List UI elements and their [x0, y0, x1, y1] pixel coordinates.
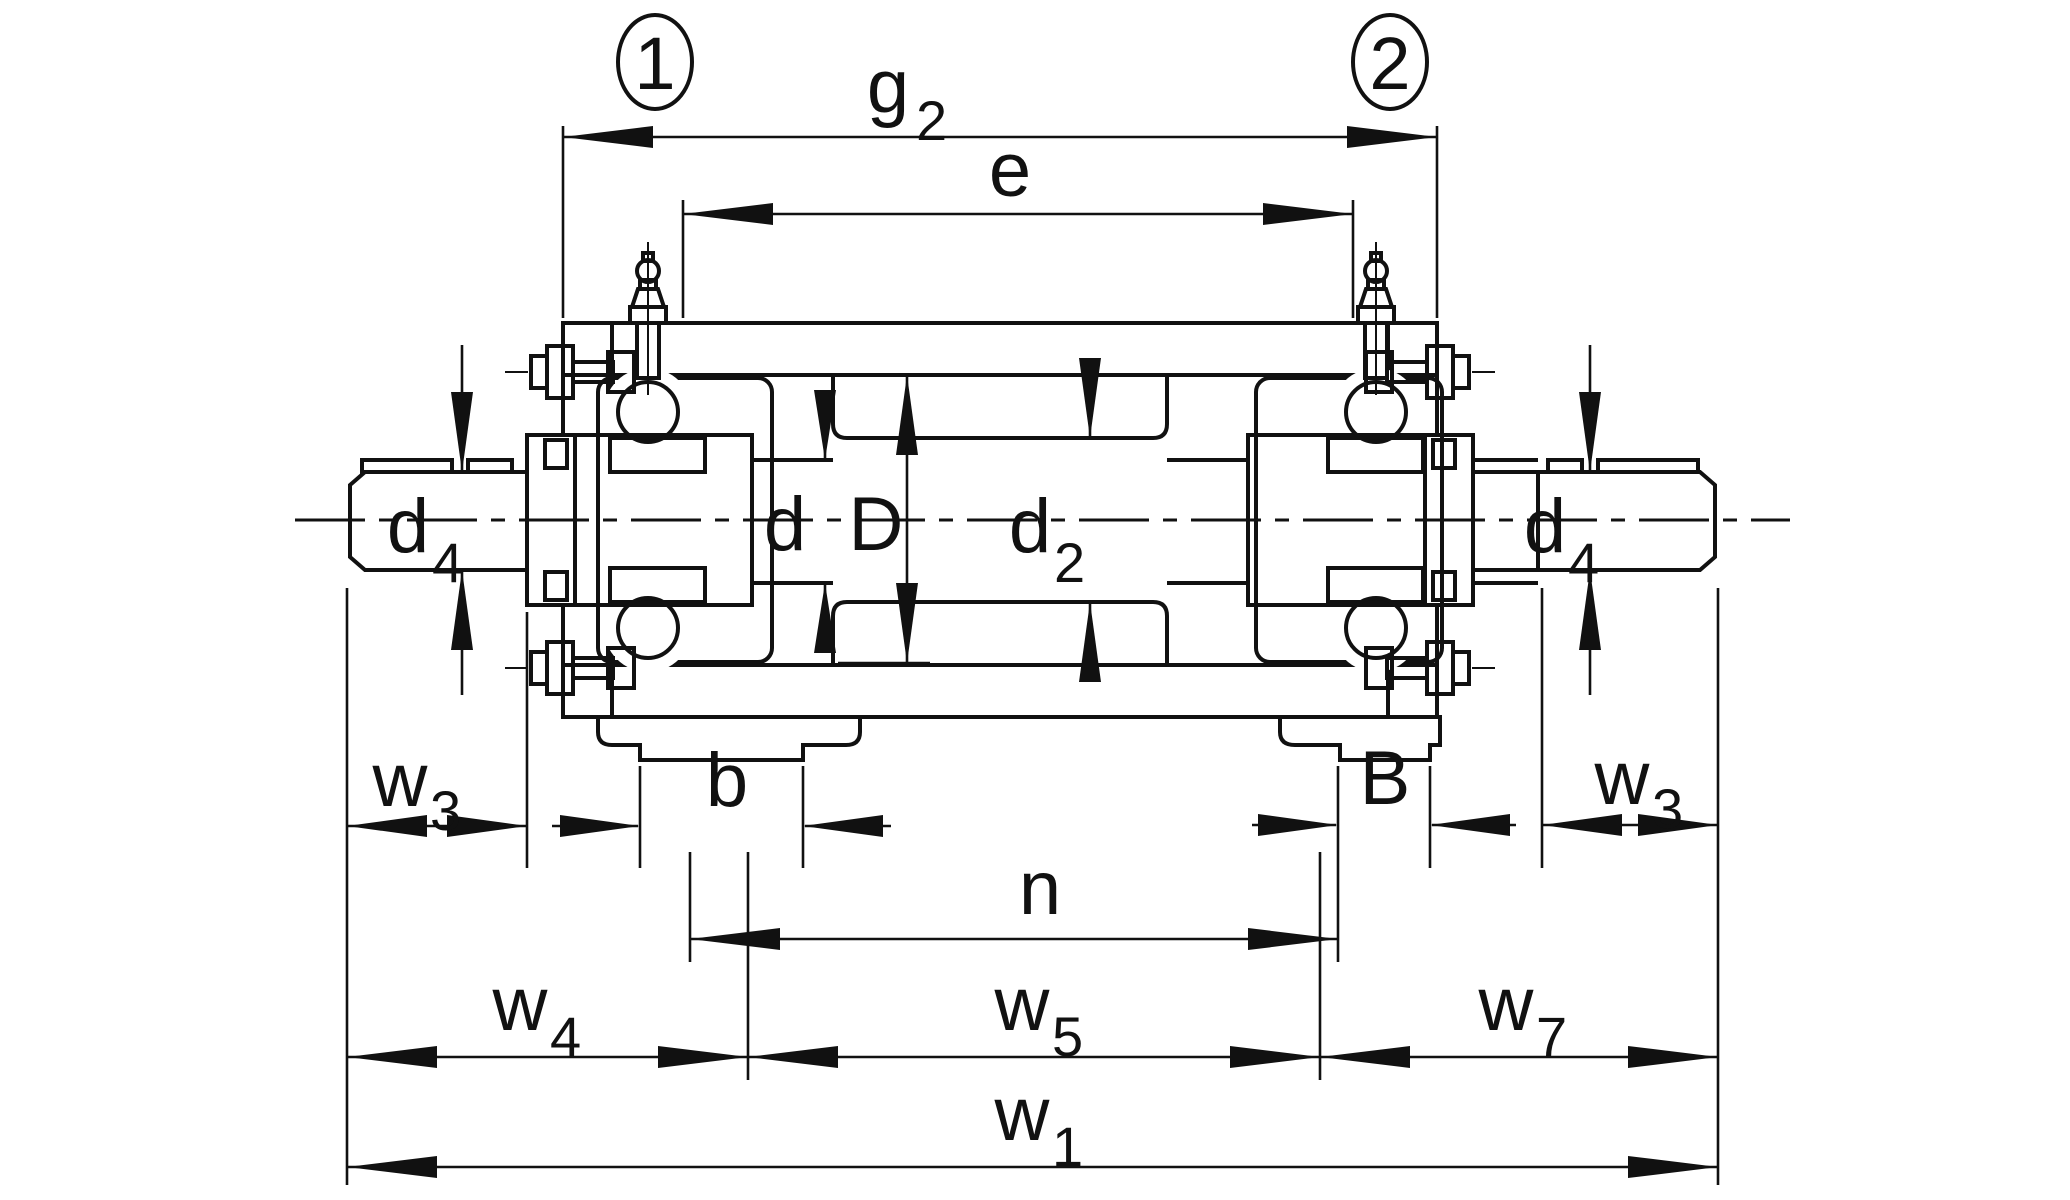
dim-label-w7: w	[1478, 962, 1535, 1047]
dim-label-w1: w	[994, 1072, 1051, 1157]
dim-label-d: d	[764, 482, 806, 567]
dim-label-e: e	[989, 128, 1031, 213]
dim-label-g2: g	[867, 44, 909, 129]
dim-label-w3-right: w	[1594, 736, 1651, 821]
dim-label-b: b	[706, 738, 748, 823]
dim-label-w5-sub: 5	[1052, 1005, 1083, 1068]
technical-drawing-page: g 2 e 1 2 d 4 d 4 d	[0, 0, 2070, 1200]
dim-label-D: D	[849, 482, 904, 567]
dim-label-d4-right-sub: 4	[1568, 531, 1599, 594]
callout-1-label: 1	[634, 22, 675, 105]
dim-label-w4: w	[492, 962, 549, 1047]
roller-unit-drawing: g 2 e 1 2 d 4 d 4 d	[0, 0, 2070, 1200]
dim-label-d4-left-sub: 4	[432, 531, 463, 594]
dim-label-w5: w	[994, 962, 1051, 1047]
dim-label-w1-sub: 1	[1052, 1115, 1083, 1178]
dim-label-B: B	[1360, 736, 1411, 821]
dim-label-w3-left-sub: 3	[430, 779, 461, 842]
dim-label-n: n	[1019, 846, 1061, 931]
dim-label-w4-sub: 4	[550, 1005, 581, 1068]
dim-label-w7-sub: 7	[1536, 1005, 1567, 1068]
dim-label-w3-right-sub: 3	[1652, 777, 1683, 840]
dim-label-g2-sub: 2	[916, 89, 947, 152]
dim-label-d2: d	[1009, 484, 1051, 569]
callout-2-label: 2	[1369, 22, 1410, 105]
dim-label-w3-left: w	[372, 738, 429, 823]
dim-label-d4-left: d	[387, 484, 429, 569]
dim-label-d4-right: d	[1524, 484, 1566, 569]
dim-label-d2-sub: 2	[1054, 531, 1085, 594]
